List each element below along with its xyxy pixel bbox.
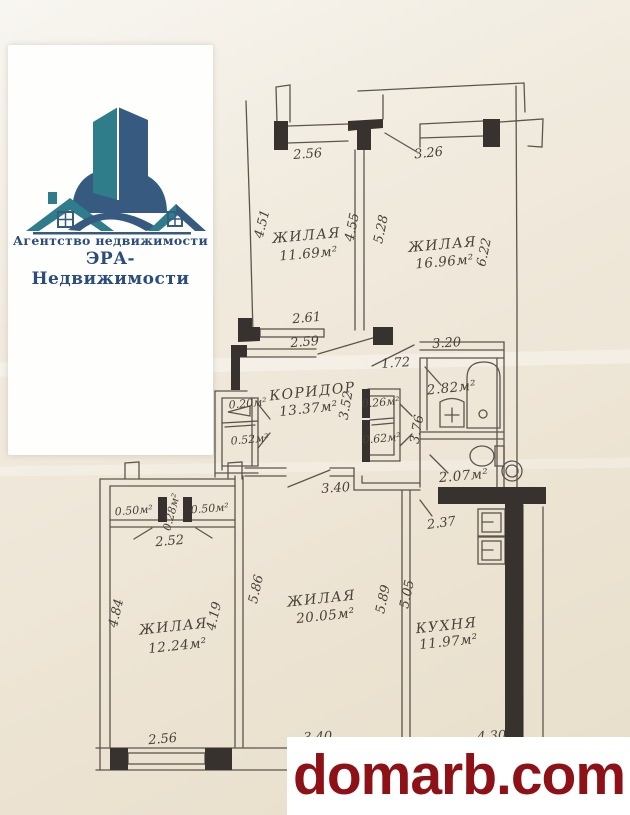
dim-label: 4.51 xyxy=(252,208,274,241)
room-area: 2.07м² xyxy=(437,466,489,486)
logo-agency-line: Агентство недвижимости xyxy=(8,233,213,248)
dim-label: 2.59 xyxy=(289,334,320,352)
watermark-band: domarb.com xyxy=(287,737,630,815)
sink-tap-icon xyxy=(445,408,459,422)
dim-label: 4.55 xyxy=(342,212,363,244)
dim-label: 3.20 xyxy=(432,335,462,352)
logo-card: Агентство недвижимости ЭРА-Недвижимости xyxy=(8,45,213,455)
watermark-text: domarb.com xyxy=(287,737,630,813)
dim-label: 2.37 xyxy=(425,514,457,533)
dim-label: 4.19 xyxy=(204,600,225,633)
dim-label: 3.26 xyxy=(413,145,443,163)
scanned-floorplan-photo: 2.56 3.26 4.51 ЖИЛАЯ 11.69м² 4.55 5.28 Ж… xyxy=(0,0,630,815)
pantry-area: 0.50м² xyxy=(114,503,153,519)
dim-label: 5.05 xyxy=(397,579,418,610)
closet-area: 0.52м² xyxy=(230,431,269,447)
dim-label: 5.89 xyxy=(373,584,394,615)
dim-label: 3.76 xyxy=(408,414,428,445)
bathtub-drain-icon xyxy=(479,410,487,418)
dim-label: 2.61 xyxy=(291,310,322,328)
dim-label: 1.72 xyxy=(381,355,411,372)
room-area: 2.82м² xyxy=(425,377,477,398)
room-area: 12.24м² xyxy=(148,635,208,657)
dim-label: 2.52 xyxy=(154,533,185,551)
dim-label: 5.28 xyxy=(371,214,392,245)
dim-label: 3.40 xyxy=(321,480,351,497)
closet-area: 0.62м² xyxy=(362,430,401,446)
dim-label: 2.56 xyxy=(147,731,178,749)
room-area: 11.69м² xyxy=(279,243,339,264)
dim-label: 4.84 xyxy=(106,597,127,630)
dim-label: 6.22 xyxy=(474,237,495,268)
dim-label: 2.56 xyxy=(292,146,323,163)
logo-brand-line: ЭРА-Недвижимости xyxy=(8,249,213,289)
agency-logo-icon xyxy=(8,100,213,235)
pantry-area: 0.50м² xyxy=(190,501,229,517)
dim-label: 5.86 xyxy=(246,573,267,605)
toilet-icon xyxy=(470,446,494,466)
